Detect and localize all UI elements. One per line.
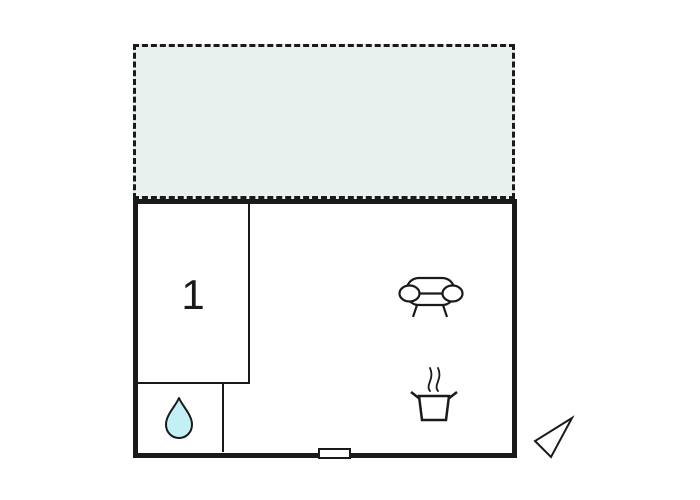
floor-plan-canvas: 1 (0, 0, 700, 500)
steam-lines (429, 368, 440, 391)
room-1: 1 (138, 204, 250, 384)
room-1-label: 1 (181, 274, 204, 316)
door-marker (318, 448, 351, 459)
sofa-icon (398, 270, 468, 320)
cooking-pot-icon (405, 360, 465, 425)
north-arrow-icon (528, 410, 583, 465)
water-drop-icon (162, 395, 196, 441)
terrace-area (133, 44, 515, 199)
